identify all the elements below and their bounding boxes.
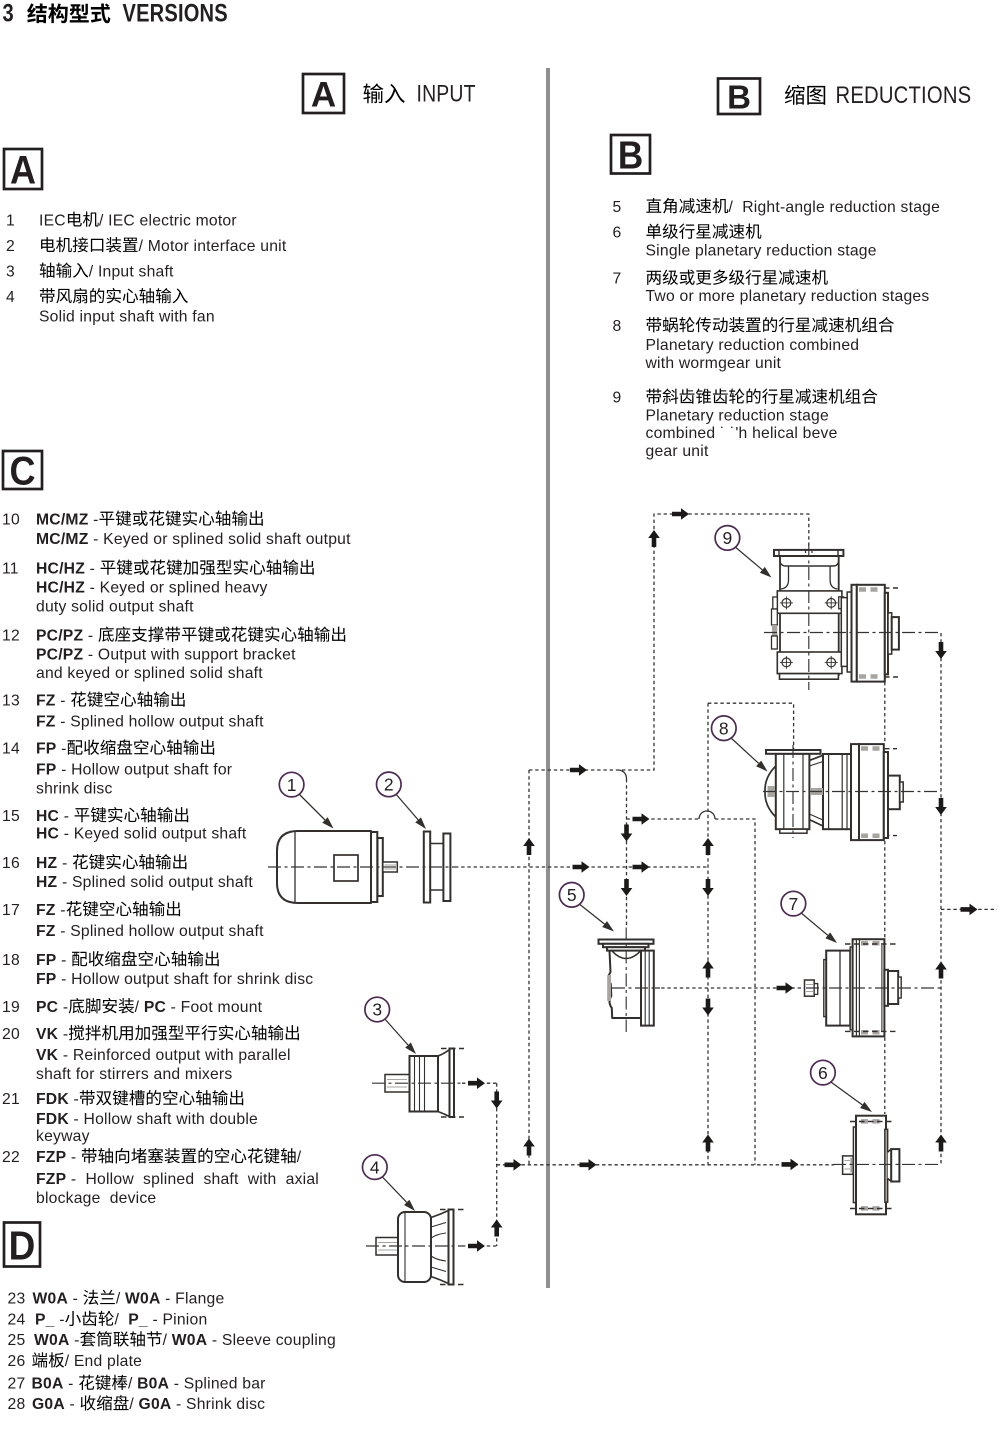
svg-text:- Splined solid output shaft: - Splined solid output shaft [57,874,253,891]
svg-text:-: - [68,1291,83,1308]
svg-text:12: 12 [2,628,20,645]
svg-text:FZP: FZP [36,1171,66,1188]
svg-text:-: - [85,561,100,578]
svg-text:- Keyed solid output shaft: - Keyed solid output shaft [59,826,247,843]
svg-text:HC/HZ: HC/HZ [36,561,85,578]
svg-text:duty solid output shaft: duty solid output shaft [36,599,194,616]
svg-text:shrink disc: shrink disc [36,781,113,798]
svg-text:- Hollow output shaft for shri: - Hollow output shaft for shrink disc [57,971,314,988]
svg-text:REDUCTIONS: REDUCTIONS [836,81,972,108]
svg-text:HC: HC [36,826,59,843]
svg-text:keyway: keyway [36,1128,90,1145]
svg-text:MC/MZ: MC/MZ [36,531,89,548]
svg-text:W0A: W0A [125,1291,161,1308]
svg-text:- Reinforced output with paral: - Reinforced output with parallel [58,1047,290,1064]
svg-text:25: 25 [8,1332,26,1349]
svg-text:Two or more planetary reductio: Two or more planetary reduction stages [646,288,930,305]
svg-text:PC: PC [144,999,166,1016]
svg-text:B0A: B0A [32,1376,64,1393]
svg-text:1: 1 [287,775,297,795]
svg-text:21: 21 [2,1091,20,1108]
svg-text:-: - [57,741,67,758]
svg-text:24: 24 [8,1312,26,1329]
svg-text:A: A [10,149,36,193]
svg-text:-: - [56,902,66,919]
svg-text:HZ: HZ [36,855,58,872]
svg-text:FP: FP [36,952,57,969]
svg-text:blockage device: blockage device [36,1190,156,1207]
svg-text:/: / [129,1396,138,1413]
svg-text:/ Right-angle reduction stage: / Right-angle reduction stage [729,199,941,216]
svg-text:/ IEC electric motor: / IEC electric motor [99,213,237,230]
svg-text:3: 3 [6,264,15,281]
svg-text:19: 19 [2,999,20,1016]
svg-text:MC/MZ: MC/MZ [36,512,89,529]
svg-text:-: - [58,999,68,1016]
svg-text:-: - [65,1396,80,1413]
svg-text:23: 23 [8,1291,26,1308]
svg-text:5: 5 [613,199,622,216]
svg-text:G0A: G0A [139,1396,172,1413]
svg-text:HZ: HZ [36,874,58,891]
svg-text:FDK: FDK [36,1091,69,1108]
svg-text:PC/PZ: PC/PZ [36,647,83,664]
svg-text:3: 3 [372,1000,382,1020]
svg-text:A: A [311,75,336,114]
svg-text:FP: FP [36,971,57,988]
svg-text:- Shrink disc: - Shrink disc [171,1396,265,1413]
svg-text:B: B [618,133,643,177]
svg-text:18: 18 [2,952,20,969]
svg-text:- Foot mount: - Foot mount [166,999,263,1016]
svg-text:-: - [70,1332,80,1349]
svg-text:PC: PC [36,999,58,1016]
svg-text:-: - [56,693,71,710]
svg-text:W0A: W0A [33,1291,69,1308]
svg-text:- Hollow splined shaft wit: - Hollow splined shaft with axial [66,1171,319,1188]
svg-text:8: 8 [613,318,622,335]
svg-text:- Hollow output shaft for: - Hollow output shaft for [57,762,233,779]
svg-text:-: - [59,808,74,825]
svg-text:-: - [57,855,72,872]
svg-text:9: 9 [723,528,733,548]
svg-text:C: C [9,450,35,494]
svg-text:5: 5 [567,885,577,905]
svg-text:/ Motor interface unit: / Motor interface unit [139,238,287,255]
svg-text:/ Input shaft: / Input shaft [89,264,174,281]
svg-text:B: B [727,78,751,115]
svg-text:20: 20 [2,1026,20,1043]
svg-text:/: / [128,1376,137,1393]
svg-text:6: 6 [818,1063,828,1083]
svg-text:- Pinion: - Pinion [148,1312,208,1329]
svg-text:- Splined hollow output shaft: - Splined hollow output shaft [56,923,264,940]
svg-text:- Keyed or splined heavy: - Keyed or splined heavy [85,580,268,597]
svg-text:FZ: FZ [36,693,56,710]
svg-text:/: / [135,999,144,1016]
svg-text:- Keyed or splined solid shaft: - Keyed or splined solid shaft output [89,531,352,548]
svg-text:27: 27 [8,1376,26,1393]
svg-text:17: 17 [2,902,20,919]
svg-text:FP: FP [36,741,57,758]
svg-text:-: - [66,1149,81,1166]
svg-text:11: 11 [2,561,19,578]
svg-text:W0A: W0A [34,1332,70,1349]
svg-text:with wormgear unit: with wormgear unit [645,355,782,372]
svg-text:8: 8 [719,718,729,738]
svg-text:FZP: FZP [36,1149,66,1166]
svg-text:10: 10 [2,512,20,529]
svg-text:gear unit: gear unit [646,443,709,460]
svg-text:7: 7 [789,894,799,914]
svg-text:Solid input shaft with fan: Solid input shaft with fan [39,309,215,326]
svg-text:Single planetary reduction sta: Single planetary reduction stage [646,243,877,260]
svg-text:- Hollow shaft with double: - Hollow shaft with double [69,1111,258,1128]
svg-text:VK: VK [36,1026,59,1043]
svg-text:FZ: FZ [36,902,56,919]
svg-text:/ End plate: / End plate [65,1353,142,1370]
svg-text:2: 2 [6,238,15,255]
svg-text:6: 6 [613,225,622,242]
svg-text:14: 14 [2,741,20,758]
svg-text:2: 2 [384,775,394,795]
svg-text:shaft for stirrers and mixers: shaft for stirrers and mixers [36,1066,232,1083]
svg-text:-: - [64,1376,79,1393]
svg-text:-: - [83,628,98,645]
svg-text:combined ˙ ˙'h helical beve: combined ˙ ˙'h helical beve [646,425,838,442]
svg-text:22: 22 [2,1149,20,1166]
svg-text:16: 16 [2,855,20,872]
svg-text:G0A: G0A [32,1396,65,1413]
svg-text:FDK: FDK [36,1111,69,1128]
svg-text:/: / [163,1332,172,1349]
svg-text:VK: VK [36,1047,59,1064]
svg-text:-: - [69,1091,79,1108]
svg-text:1: 1 [6,213,15,230]
svg-text:3: 3 [3,0,14,27]
svg-text:VERSIONS: VERSIONS [123,0,228,27]
svg-text:PC/PZ: PC/PZ [36,628,83,645]
svg-text:28: 28 [8,1396,26,1413]
svg-text:/: / [297,1149,302,1166]
svg-text:HC/HZ: HC/HZ [36,580,85,597]
svg-text:/: / [114,1312,128,1329]
svg-text:13: 13 [2,693,20,710]
svg-text:7: 7 [613,271,622,288]
svg-text:- Splined bar: - Splined bar [169,1376,265,1393]
svg-text:-: - [58,1026,68,1043]
svg-text:26: 26 [8,1353,26,1370]
svg-text:-: - [55,1312,65,1329]
svg-text:IEC: IEC [39,213,66,230]
svg-text:D: D [9,1224,36,1269]
svg-text:FZ: FZ [36,714,56,731]
svg-text:-: - [57,952,72,969]
svg-text:15: 15 [2,808,20,825]
svg-text:HC: HC [36,808,59,825]
svg-text:P_: P_ [128,1312,148,1329]
svg-text:Planetary reduction combined: Planetary reduction combined [646,337,860,354]
svg-text:P_: P_ [35,1312,55,1329]
svg-text:W0A: W0A [172,1332,208,1349]
svg-text:4: 4 [370,1157,380,1177]
svg-text:- Splined hollow output shaft: - Splined hollow output shaft [56,714,264,731]
svg-text:-: - [89,512,99,529]
svg-text:FZ: FZ [36,923,56,940]
svg-text:- Sleeve coupling: - Sleeve coupling [207,1332,336,1349]
svg-text:9: 9 [613,390,622,407]
svg-text:and keyed or splined solid sha: and keyed or splined solid shaft [36,665,263,682]
svg-text:/: / [116,1291,125,1308]
svg-text:FP: FP [36,762,57,779]
svg-text:4: 4 [6,289,15,306]
svg-text:- Flange: - Flange [161,1291,225,1308]
svg-text:B0A: B0A [137,1376,169,1393]
svg-text:INPUT: INPUT [417,80,476,107]
svg-text:Planetary reduction stage: Planetary reduction stage [646,407,829,424]
svg-text:- Output with support bracket: - Output with support bracket [83,647,296,664]
